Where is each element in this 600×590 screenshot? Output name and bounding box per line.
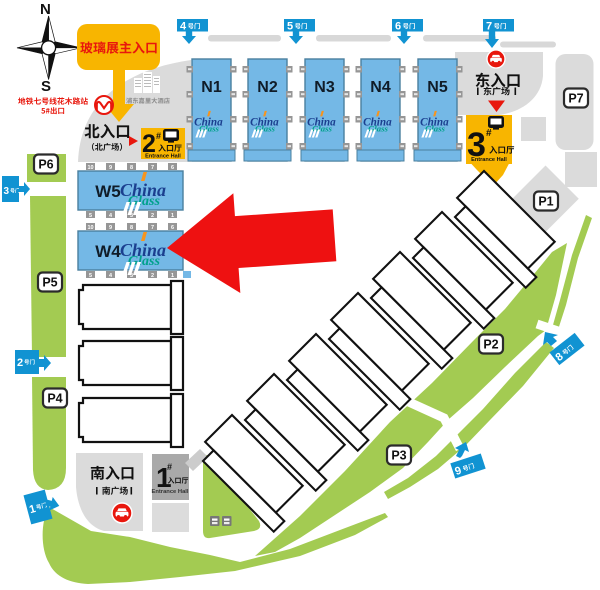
svg-text:1: 1 — [171, 273, 174, 279]
svg-text:10: 10 — [87, 225, 93, 231]
svg-text:#: # — [486, 128, 492, 139]
svg-text:2: 2 — [151, 213, 154, 219]
svg-text:P7: P7 — [568, 92, 583, 106]
svg-text:N1: N1 — [201, 79, 222, 96]
svg-text:#: # — [167, 462, 172, 472]
svg-text:6: 6 — [395, 21, 401, 33]
svg-text:N4: N4 — [370, 79, 391, 96]
svg-text:9: 9 — [109, 165, 112, 171]
svg-text:3: 3 — [4, 186, 10, 197]
svg-text:4: 4 — [180, 21, 187, 33]
svg-text:7: 7 — [486, 21, 492, 33]
svg-text:P2: P2 — [483, 338, 498, 352]
svg-text:5: 5 — [287, 21, 293, 33]
svg-text:N3: N3 — [314, 79, 335, 96]
svg-text:P6: P6 — [38, 158, 53, 172]
svg-text:2: 2 — [17, 357, 23, 369]
svg-text:Entrance Hall: Entrance Hall — [151, 489, 188, 495]
svg-text:S: S — [41, 78, 51, 95]
svg-text:2: 2 — [151, 273, 154, 279]
svg-text:N: N — [40, 1, 51, 18]
svg-text:P5: P5 — [42, 276, 57, 290]
svg-text:Entrance Hall: Entrance Hall — [471, 157, 507, 163]
svg-text:P1: P1 — [538, 195, 553, 209]
svg-text:5: 5 — [89, 273, 92, 279]
svg-text:1: 1 — [171, 213, 174, 219]
svg-text:8: 8 — [130, 225, 133, 231]
svg-text:6: 6 — [171, 225, 174, 231]
svg-text:6: 6 — [171, 165, 174, 171]
svg-text:W4: W4 — [95, 242, 121, 261]
svg-text:N2: N2 — [257, 79, 278, 96]
svg-text:5: 5 — [89, 213, 92, 219]
svg-text:P4: P4 — [47, 392, 62, 406]
svg-text:8: 8 — [130, 165, 133, 171]
svg-text:7: 7 — [151, 165, 154, 171]
svg-text:P3: P3 — [391, 449, 406, 463]
svg-text:7: 7 — [151, 225, 154, 231]
svg-text:N5: N5 — [427, 79, 448, 96]
svg-text:W5: W5 — [95, 182, 121, 201]
svg-text:#: # — [156, 131, 161, 141]
svg-text:9: 9 — [109, 225, 112, 231]
svg-text:10: 10 — [87, 165, 93, 171]
svg-text:Entrance Hall: Entrance Hall — [145, 154, 181, 160]
